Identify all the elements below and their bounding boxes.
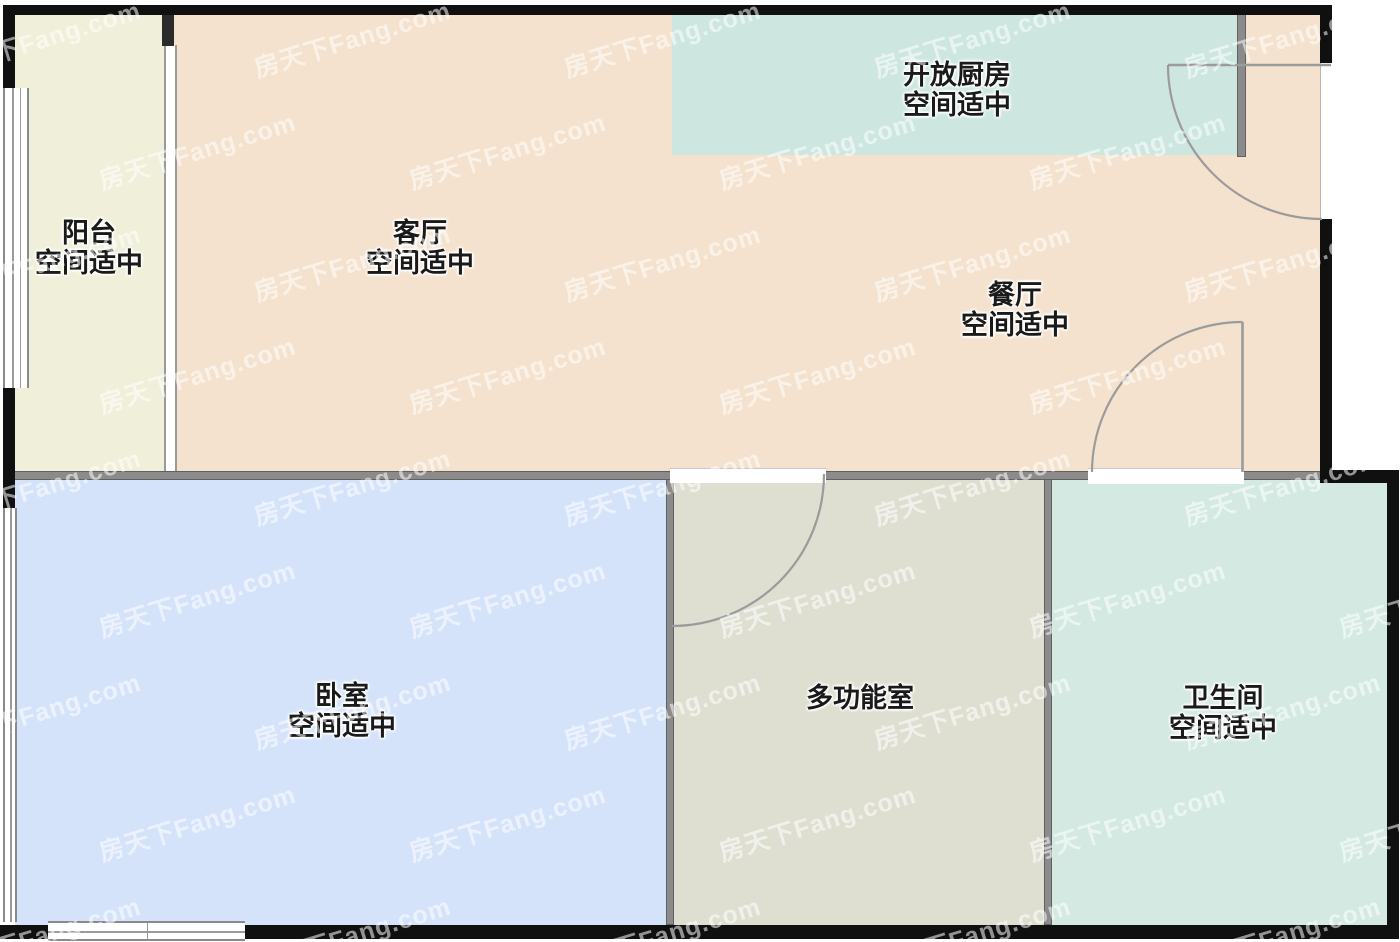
dining-status: 空间适中 bbox=[961, 310, 1069, 340]
bedroom-multifunction-wall bbox=[666, 479, 674, 925]
kitchen-label: 开放厨房 空间适中 bbox=[903, 60, 1011, 120]
bedroom-name: 卧室 bbox=[288, 681, 396, 711]
right-wall-middle bbox=[1320, 219, 1332, 472]
bedroom-status: 空间适中 bbox=[288, 711, 396, 741]
bedroom-bottom-window bbox=[48, 921, 245, 941]
bedroom-label: 卧室 空间适中 bbox=[288, 681, 396, 741]
right-wall-lower bbox=[1387, 470, 1399, 938]
multifunction-label: 多功能室 bbox=[806, 683, 914, 713]
watermark-text: 房天下Fang.com bbox=[1334, 103, 1400, 197]
top-wall bbox=[6, 5, 1332, 15]
entry-door-opening bbox=[1320, 63, 1333, 219]
watermark-text: 房天下Fang.com bbox=[1334, 327, 1400, 421]
living-name: 客厅 bbox=[366, 218, 474, 248]
balcony-status: 空间适中 bbox=[35, 248, 143, 278]
balcony-window bbox=[3, 88, 29, 388]
bathroom-label: 卫生间 空间适中 bbox=[1169, 683, 1277, 743]
bathroom-name: 卫生间 bbox=[1169, 683, 1277, 713]
dining-name: 餐厅 bbox=[961, 280, 1069, 310]
multifunction-door-opening bbox=[670, 468, 826, 483]
balcony-label: 阳台 空间适中 bbox=[35, 218, 143, 278]
kitchen-status: 空间适中 bbox=[903, 90, 1011, 120]
right-wall-top bbox=[1320, 5, 1332, 63]
bottom-left-corner bbox=[0, 928, 17, 939]
kitchen-partition-wall bbox=[1237, 13, 1246, 157]
bathroom-door-opening bbox=[1088, 468, 1244, 484]
kitchen-name: 开放厨房 bbox=[903, 60, 1011, 90]
balcony-name: 阳台 bbox=[35, 218, 143, 248]
floorplan-canvas: 阳台 空间适中 客厅 空间适中 开放厨房 空间适中 餐厅 空间适中 卧室 空间适… bbox=[0, 0, 1400, 942]
balcony-divider-stub bbox=[162, 12, 174, 46]
left-wall-upper bbox=[3, 5, 15, 88]
living-label: 客厅 空间适中 bbox=[366, 218, 474, 278]
bedroom-side-window bbox=[3, 508, 17, 922]
multifunction-name: 多功能室 bbox=[806, 683, 914, 713]
balcony-sliding-door bbox=[164, 45, 177, 471]
bathroom-status: 空间适中 bbox=[1169, 713, 1277, 743]
living-status: 空间适中 bbox=[366, 248, 474, 278]
dining-label: 餐厅 空间适中 bbox=[961, 280, 1069, 340]
left-wall-middle bbox=[3, 388, 15, 508]
multifunction-bathroom-wall bbox=[1044, 479, 1052, 925]
